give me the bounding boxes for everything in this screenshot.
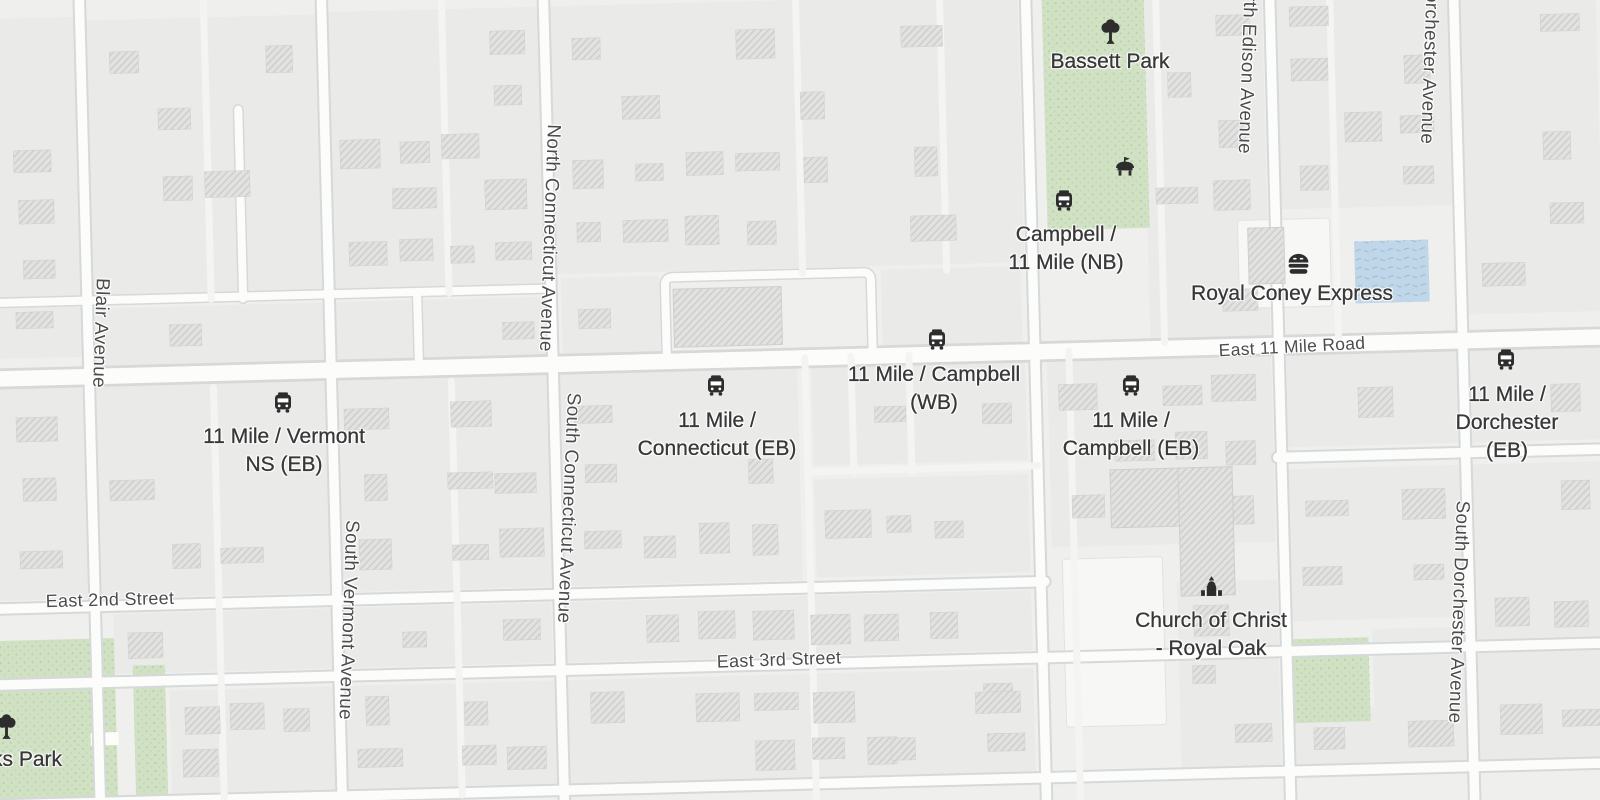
- poi-label-bassett-park[interactable]: Bassett Park: [1050, 48, 1169, 76]
- tree-icon[interactable]: [1099, 19, 1122, 46]
- poi-label-campbell-11-mile-nb[interactable]: Campbell / 11 Mile (NB): [1008, 221, 1123, 277]
- street-label-east-3rd-street: East 3rd Street: [716, 647, 841, 672]
- bus-icon[interactable]: [706, 375, 726, 397]
- poi-label-11-mile-campbell-eb[interactable]: 11 Mile / Campbell (EB): [1063, 407, 1200, 463]
- bus-icon[interactable]: [273, 392, 293, 414]
- tree-icon[interactable]: [0, 714, 18, 741]
- poi-label-11-mile-connecticut-eb[interactable]: 11 Mile / Connecticut (EB): [638, 407, 797, 463]
- shelter-icon[interactable]: [1113, 157, 1137, 177]
- building: [673, 286, 782, 347]
- bus-icon[interactable]: [1496, 349, 1516, 371]
- restaurant-icon[interactable]: [1286, 252, 1311, 275]
- poi-label-church-of-christ[interactable]: Church of Christ - Royal Oak: [1135, 607, 1287, 663]
- street-label-blair-avenue: Blair Avenue: [87, 278, 113, 389]
- place-of-worship-icon[interactable]: [1199, 576, 1224, 597]
- poi-label-royal-coney-express[interactable]: Royal Coney Express: [1191, 280, 1393, 308]
- bus-icon[interactable]: [1054, 190, 1074, 212]
- building-restaurant: [1248, 227, 1285, 284]
- street-label-east-2nd-street: East 2nd Street: [45, 588, 174, 612]
- bus-icon[interactable]: [927, 329, 947, 351]
- poi-label-11-mile-campbell-wb[interactable]: 11 Mile / Campbell (WB): [848, 361, 1020, 417]
- poi-label-parks-park[interactable]: ks Park: [0, 746, 62, 774]
- poi-label-11-mile-dorchester-eb[interactable]: 11 Mile / Dorchester (EB): [1456, 381, 1559, 465]
- map-canvas[interactable]: Blair Avenue South Vermont Avenue North …: [0, 0, 1600, 800]
- poi-label-11-mile-vermont-ns-eb[interactable]: 11 Mile / Vermont NS (EB): [203, 423, 365, 479]
- bus-icon[interactable]: [1121, 375, 1141, 397]
- map-tiles: [0, 0, 1600, 800]
